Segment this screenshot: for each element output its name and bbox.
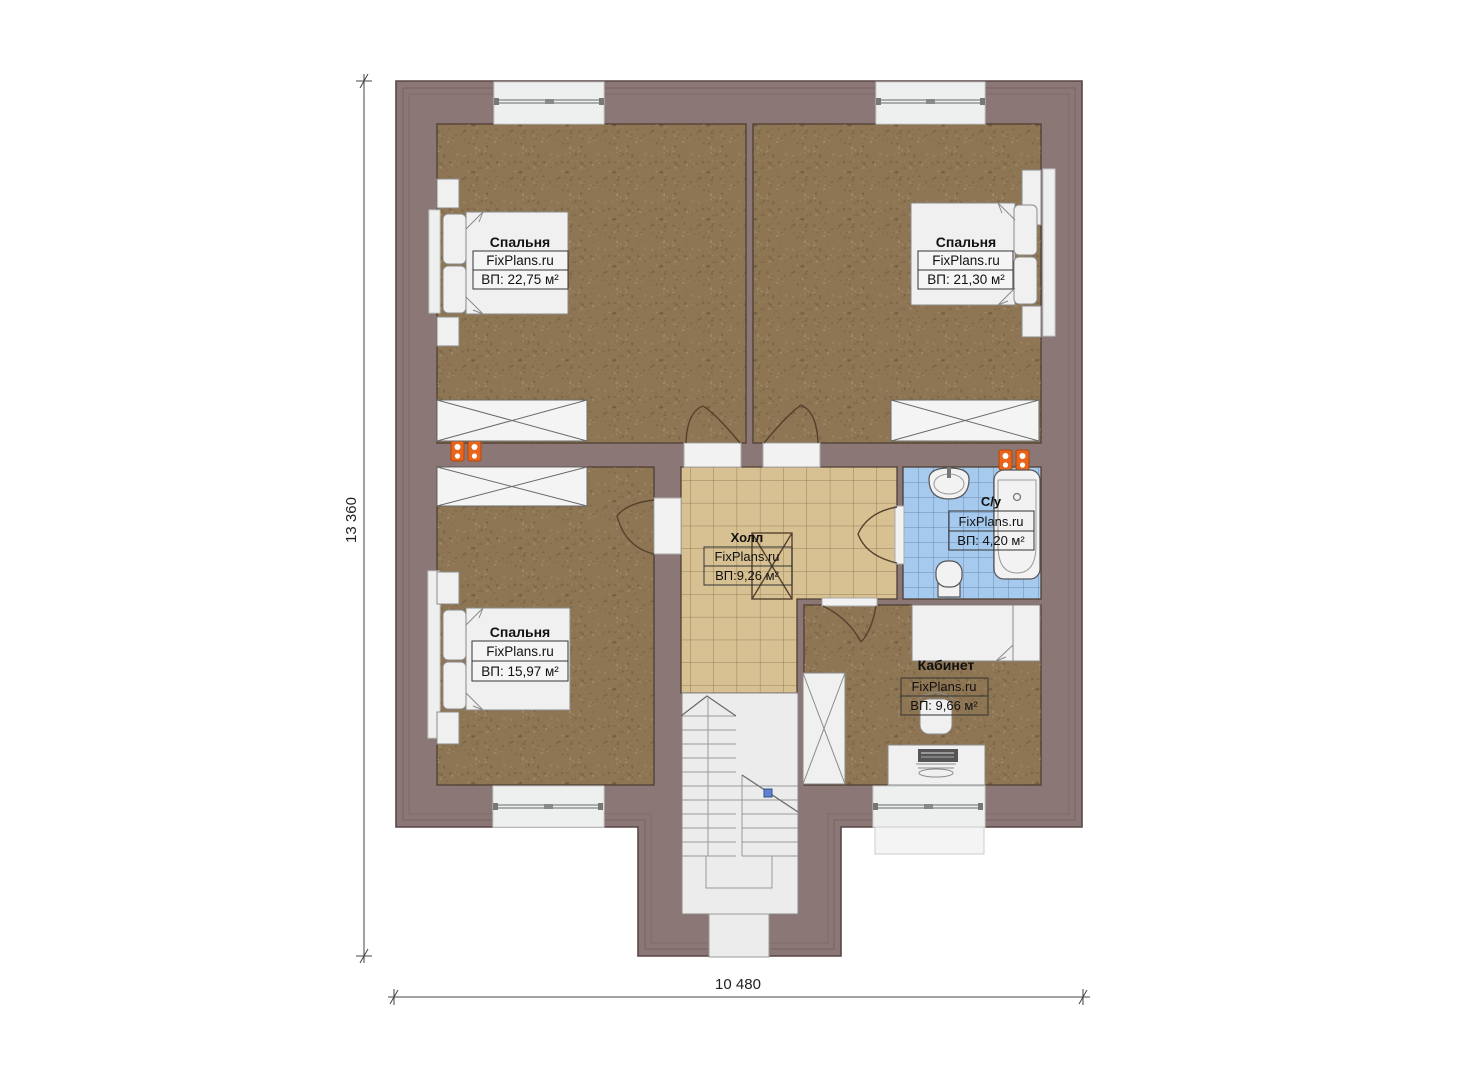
svg-text:FixPlans.ru: FixPlans.ru [958,514,1023,529]
svg-text:FixPlans.ru: FixPlans.ru [486,253,554,268]
svg-text:Кабинет: Кабинет [918,657,975,673]
svg-text:FixPlans.ru: FixPlans.ru [486,644,554,659]
svg-text:Холл: Холл [731,530,764,545]
svg-text:ВП: 22,75 м²: ВП: 22,75 м² [481,272,559,287]
svg-text:ВП:9,26 м²: ВП:9,26 м² [715,568,779,583]
svg-text:FixPlans.ru: FixPlans.ru [911,679,976,694]
svg-text:ВП: 4,20 м²: ВП: 4,20 м² [957,533,1025,548]
svg-text:Спальня: Спальня [936,234,996,250]
svg-text:С/у: С/у [981,494,1002,509]
svg-text:Спальня: Спальня [490,624,550,640]
svg-text:13 360: 13 360 [343,497,360,543]
svg-text:10 480: 10 480 [715,976,761,993]
svg-text:ВП: 9,66 м²: ВП: 9,66 м² [910,698,978,713]
svg-text:FixPlans.ru: FixPlans.ru [714,549,779,564]
svg-text:Спальня: Спальня [490,234,550,250]
svg-text:ВП: 21,30 м²: ВП: 21,30 м² [927,272,1005,287]
svg-text:FixPlans.ru: FixPlans.ru [932,253,1000,268]
svg-text:ВП: 15,97 м²: ВП: 15,97 м² [481,664,559,679]
